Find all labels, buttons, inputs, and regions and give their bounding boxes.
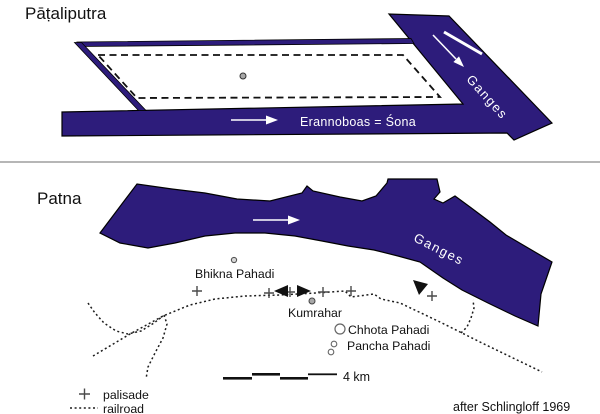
upper-map-title: Pāṭaliputra xyxy=(25,4,107,23)
legend: palisade railroad xyxy=(70,388,149,414)
ganges-river-shape-lower xyxy=(100,179,552,326)
kumrahar-label: Kumrahar xyxy=(288,306,342,320)
excavation-dot-upper xyxy=(240,73,246,79)
scale-bar-label: 4 km xyxy=(343,370,370,384)
lower-map-patna: Patna Ganges xyxy=(37,179,570,414)
arrowhead-northeast-icon xyxy=(413,280,428,295)
upper-map-pataliputra: Pāṭaliputra Ganges Erannoboas = Śona xyxy=(25,4,552,140)
scale-bar: 4 km xyxy=(223,370,370,384)
schlingloff-figure: Pāṭaliputra Ganges Erannoboas = Śona Pat… xyxy=(0,0,600,414)
west-channel-band xyxy=(75,43,147,111)
bhikna-pahadi-label: Bhikna Pahadi xyxy=(195,267,274,281)
erannoboas-label: Erannoboas = Śona xyxy=(300,114,416,129)
legend-palisade-label: palisade xyxy=(103,388,149,402)
kumrahar-marker xyxy=(309,298,315,304)
chhota-pahadi-label: Chhota Pahadi xyxy=(348,323,429,337)
city-outline-dashed xyxy=(98,55,440,98)
pancha-pahadi-marker-2 xyxy=(328,349,334,355)
railroad-south-branch xyxy=(146,315,167,379)
arrowhead-west-icon xyxy=(274,285,288,297)
pancha-pahadi-label: Pancha Pahadi xyxy=(347,339,430,353)
arrowhead-east-icon xyxy=(297,285,311,297)
railroad-northwest-branch xyxy=(88,303,163,334)
bhikna-pahadi-marker xyxy=(231,257,236,262)
legend-palisade-icon xyxy=(79,389,90,400)
legend-railroad-label: railroad xyxy=(103,402,144,414)
pancha-pahadi-marker-1 xyxy=(331,341,337,347)
north-channel-band xyxy=(77,39,414,47)
lower-map-title: Patna xyxy=(37,189,82,208)
chhota-pahadi-marker xyxy=(335,324,345,334)
attribution-text: after Schlingloff 1969 xyxy=(453,400,570,414)
railroad-north-branch xyxy=(461,300,474,333)
map-canvas: Pāṭaliputra Ganges Erannoboas = Śona Pat… xyxy=(0,0,600,414)
railroad-main-line xyxy=(93,291,542,372)
